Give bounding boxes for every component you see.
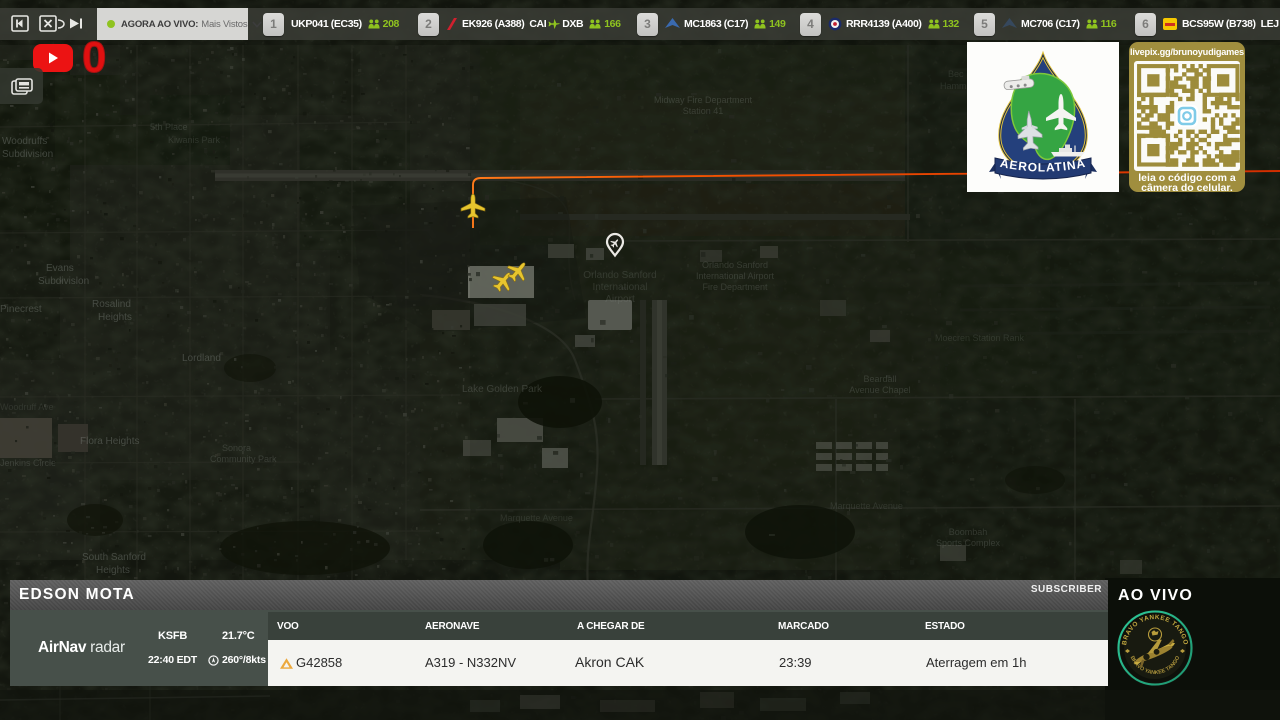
svg-text:Lake Golden Park: Lake Golden Park — [462, 384, 543, 395]
svg-text:Subdivision: Subdivision — [38, 276, 89, 287]
svg-text:South Sanford: South Sanford — [82, 552, 146, 563]
svg-text:Sonora: Sonora — [222, 443, 251, 453]
svg-text:Moecren Station Rank: Moecren Station Rank — [935, 333, 1025, 343]
svg-text:Airport: Airport — [605, 294, 635, 305]
svg-text:Woodruffs: Woodruffs — [2, 136, 47, 147]
svg-text:Pinecrest: Pinecrest — [0, 304, 42, 315]
svg-text:Sports Complex: Sports Complex — [936, 538, 1001, 548]
svg-text:Subdivision: Subdivision — [2, 149, 53, 160]
svg-text:Heights: Heights — [98, 312, 132, 323]
svg-text:Avenue Chapel: Avenue Chapel — [849, 385, 910, 395]
svg-text:Orlando Sanford: Orlando Sanford — [583, 270, 656, 281]
svg-text:International Airport: International Airport — [696, 271, 775, 281]
svg-text:Kiwanis Park: Kiwanis Park — [168, 135, 221, 145]
svg-text:Jenkins Circle: Jenkins Circle — [0, 458, 56, 468]
svg-text:Evans: Evans — [46, 263, 74, 274]
svg-text:Woodruff Ave: Woodruff Ave — [0, 402, 54, 412]
svg-text:Rosalind: Rosalind — [92, 299, 131, 310]
svg-text:5th Place: 5th Place — [150, 122, 188, 132]
svg-text:Station 41: Station 41 — [683, 106, 724, 116]
svg-text:International: International — [592, 282, 647, 293]
svg-text:Boombah: Boombah — [949, 527, 988, 537]
svg-text:Beardall: Beardall — [863, 374, 896, 384]
svg-text:Marquette Avenue: Marquette Avenue — [500, 513, 573, 523]
svg-text:Heights: Heights — [96, 565, 130, 576]
svg-text:Fire Department: Fire Department — [702, 282, 768, 292]
svg-text:Flora Heights: Flora Heights — [80, 436, 139, 447]
svg-text:Midway Fire Department: Midway Fire Department — [654, 95, 753, 105]
svg-text:Bec: Bec — [948, 69, 964, 79]
svg-text:Hamm: Hamm — [940, 81, 967, 91]
svg-text:Orlando Sanford: Orlando Sanford — [702, 260, 768, 270]
svg-text:Marquette Avenue: Marquette Avenue — [830, 501, 903, 511]
svg-text:Community Park: Community Park — [210, 454, 277, 464]
svg-text:Lordland: Lordland — [182, 353, 221, 364]
